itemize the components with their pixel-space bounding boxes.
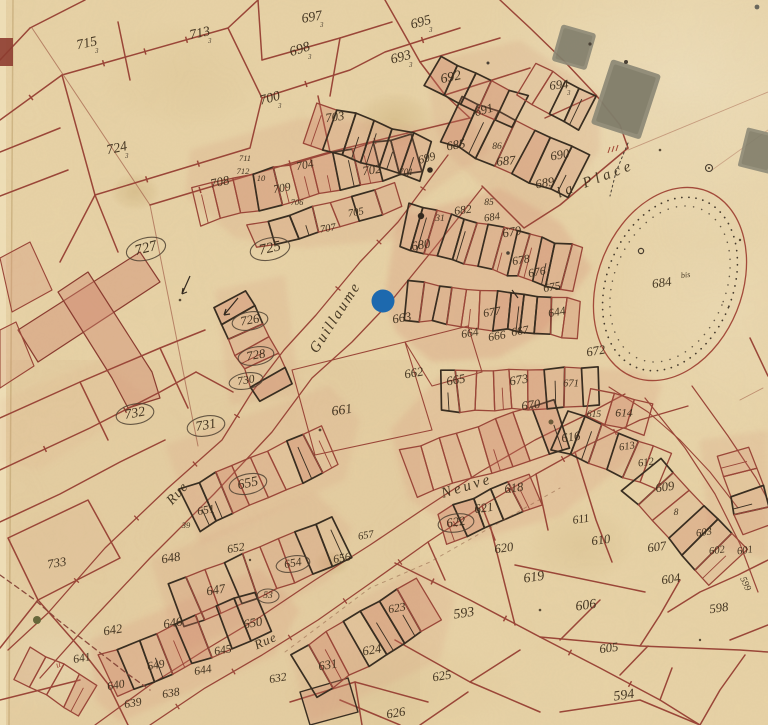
svg-text:684: 684 — [651, 274, 673, 292]
svg-text:614: 614 — [615, 407, 633, 420]
svg-text:622: 622 — [445, 514, 466, 531]
svg-text:619: 619 — [523, 568, 546, 586]
svg-text:3: 3 — [319, 21, 324, 29]
svg-text:616: 616 — [560, 429, 581, 446]
svg-text:612: 612 — [637, 456, 655, 469]
svg-text:702: 702 — [361, 162, 382, 179]
svg-text:10: 10 — [257, 173, 266, 183]
svg-text:602: 602 — [708, 544, 726, 557]
svg-text:39: 39 — [181, 520, 191, 530]
svg-text:3: 3 — [277, 102, 282, 110]
svg-text:610: 610 — [590, 532, 611, 549]
svg-text:606: 606 — [575, 596, 598, 614]
svg-text:703: 703 — [324, 109, 345, 126]
svg-text:712: 712 — [237, 166, 251, 176]
svg-text:618: 618 — [503, 480, 524, 497]
svg-text:85: 85 — [484, 198, 494, 208]
svg-text:bis: bis — [680, 270, 691, 280]
svg-text:607: 607 — [646, 539, 667, 556]
svg-text:3: 3 — [408, 61, 413, 69]
svg-text:684: 684 — [483, 211, 501, 224]
svg-text:3: 3 — [124, 152, 129, 160]
svg-text:3: 3 — [566, 89, 571, 97]
svg-text:86: 86 — [492, 142, 502, 152]
svg-text:687: 687 — [496, 153, 517, 169]
svg-text:670: 670 — [520, 397, 541, 414]
svg-text:661: 661 — [331, 401, 354, 419]
svg-text:611: 611 — [572, 512, 590, 527]
svg-text:31: 31 — [434, 214, 445, 224]
svg-text:601: 601 — [736, 544, 753, 557]
svg-text:3: 3 — [428, 26, 433, 34]
svg-text:594: 594 — [613, 686, 636, 704]
svg-text:605: 605 — [598, 640, 619, 657]
svg-text:598: 598 — [708, 600, 729, 617]
svg-text:682: 682 — [453, 203, 472, 218]
svg-text:620: 620 — [493, 540, 514, 557]
svg-text:53: 53 — [263, 591, 273, 601]
svg-text:706: 706 — [291, 197, 305, 207]
svg-text:8: 8 — [674, 508, 679, 518]
svg-text:604: 604 — [660, 571, 681, 588]
svg-text:701: 701 — [399, 168, 413, 178]
svg-text:593: 593 — [453, 604, 476, 622]
svg-text:609: 609 — [654, 479, 675, 496]
svg-text:671: 671 — [563, 378, 579, 389]
svg-text:3: 3 — [207, 37, 212, 45]
svg-text:3: 3 — [94, 47, 99, 55]
svg-text:603: 603 — [695, 526, 712, 539]
svg-text:615: 615 — [587, 410, 602, 420]
svg-text:621: 621 — [473, 500, 494, 517]
svg-text:711: 711 — [239, 153, 251, 163]
svg-text:613: 613 — [618, 440, 635, 453]
svg-text:3: 3 — [307, 53, 312, 61]
